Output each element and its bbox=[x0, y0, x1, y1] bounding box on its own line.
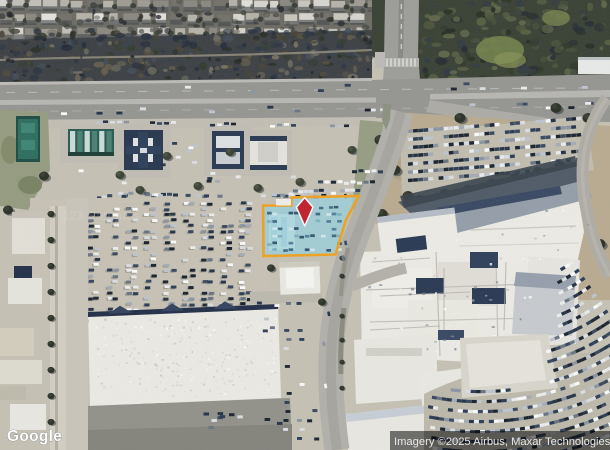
svg-text:Imagery ©2025 Airbus, Maxar Te: Imagery ©2025 Airbus, Maxar Technologies bbox=[394, 436, 610, 448]
svg-text:Google: Google bbox=[7, 428, 62, 445]
svg-text:123 Samples: 123 Samples bbox=[62, 208, 141, 223]
